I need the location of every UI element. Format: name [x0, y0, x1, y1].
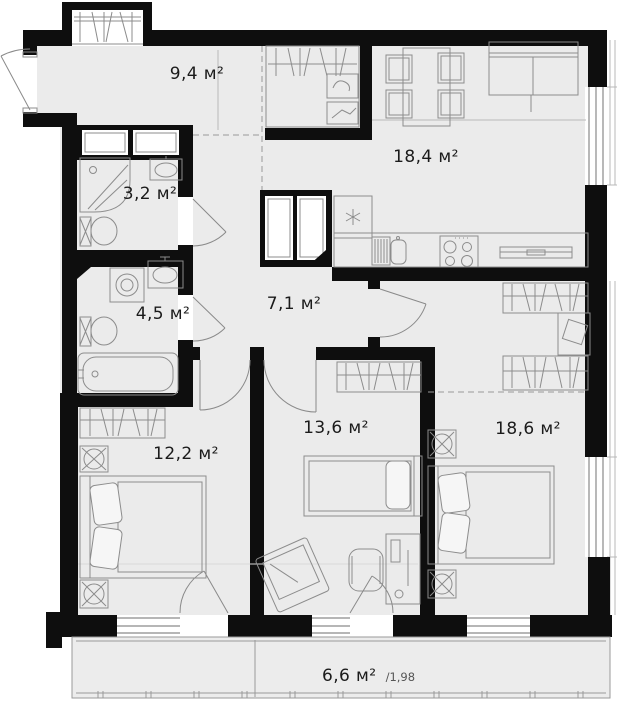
room-label-bedroom-left: 12,2 м²: [153, 444, 219, 464]
window-bedroom-left: [117, 615, 180, 637]
window-bedroom-middle: [312, 615, 350, 637]
nightstand-crossed: [428, 570, 456, 598]
room-label-kitchen-living: 18,4 м²: [393, 147, 459, 167]
facade-lines: [607, 40, 617, 615]
room-label-bedroom-middle: 13,6 м²: [303, 418, 369, 438]
nightstand-crossed: [428, 430, 456, 458]
room-label-bedroom-right: 18,6 м²: [495, 419, 561, 439]
balcony-coefficient: /1,98: [386, 670, 415, 684]
room-label-bathroom: 4,5 м²: [136, 304, 190, 324]
floor-plan: 9,4 м² 18,4 м² 3,2 м² 4,5 м² 7,1 м² 12,2…: [0, 0, 617, 706]
window-bedroom-right-bottom: [467, 615, 530, 637]
balcony-area: 6,6 м²: [322, 666, 376, 686]
window-kitchen: [585, 87, 607, 185]
room-label-bathroom-small: 3,2 м²: [123, 184, 177, 204]
nightstand-crossed: [80, 580, 108, 608]
window-bedroom-right-side: [585, 457, 607, 557]
room-label-hallway: 9,4 м²: [170, 64, 224, 84]
room-label-corridor: 7,1 м²: [267, 294, 321, 314]
floor-plan-svg: 9,4 м² 18,4 м² 3,2 м² 4,5 м² 7,1 м² 12,2…: [0, 0, 617, 706]
